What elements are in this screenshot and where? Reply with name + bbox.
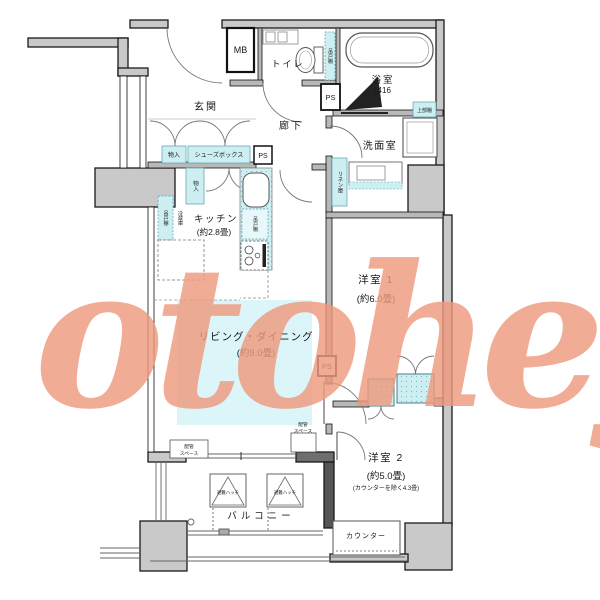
western-room-1-label: 洋室 1	[358, 273, 394, 286]
wall-west2-thick	[324, 462, 334, 528]
kitchen-storage-arc-1	[206, 168, 229, 191]
pipe-space-notch-left-line2: スペース	[180, 451, 199, 457]
refrigerator-space	[158, 240, 204, 280]
pipe-space-upper-label: PS	[325, 93, 335, 102]
wall-kitchen-north-jamb	[312, 164, 326, 170]
kitchen-door-arc	[280, 170, 312, 202]
meter-box-label: MB	[234, 45, 248, 55]
floor-plan-drawing: MB トイレ 吊戸棚 PS 浴室 1416 玄関 廊下 物入 シューズボックス …	[0, 0, 600, 600]
room2-closet-arc-2	[381, 406, 394, 419]
wall-right-lower	[443, 215, 452, 525]
escape-hatch-right-label: 避難ハッチ	[274, 489, 296, 496]
floor-plan-page: MB トイレ 吊戸棚 PS 浴室 1416 玄関 廊下 物入 シューズボックス …	[0, 0, 600, 600]
pipe-space-ld-label: PS	[322, 362, 332, 371]
toilet-handwash-basin-1	[266, 32, 275, 42]
kitchen-storage-label: 物入	[192, 179, 199, 192]
balcony-label: バルコニー	[227, 511, 294, 522]
wall-topleft-stub	[28, 38, 128, 47]
vanity	[349, 162, 402, 189]
entrance-closet-arc-2	[175, 121, 200, 146]
toilet-door-arc	[263, 83, 302, 122]
kitchen-counter-dashed-end	[240, 270, 268, 298]
upper-shelf-label: 上部棚	[417, 107, 432, 114]
shoe-box-label: シューズボックス	[194, 151, 243, 159]
living-dining-size: (約9.0畳)	[237, 347, 276, 359]
kitchen-hanging-cupboard-label: 吊戸棚	[252, 217, 258, 233]
column-bottom-left	[140, 521, 187, 571]
room1-closet-arc-2	[416, 356, 435, 374]
wall-ld-east-c	[326, 424, 332, 434]
pipe-space-notch-right	[291, 433, 316, 452]
pipe-space-notch-left-line1: 配管	[184, 443, 194, 450]
wall-washroom-west-b	[326, 156, 332, 214]
column-bottom-right	[405, 523, 452, 570]
entrance-closet-arc-1	[150, 121, 175, 146]
room1-closet-arc-1	[397, 356, 416, 374]
room2-closet	[368, 379, 394, 406]
entrance-label: 玄関	[194, 100, 218, 113]
entrance-door-arc	[167, 28, 222, 83]
wall-right-jog	[408, 165, 444, 215]
bathroom-label: 浴室	[371, 74, 394, 86]
kitchen-counter	[240, 168, 272, 298]
pipe-space-notch-right-box	[291, 433, 316, 452]
pipe-space-notch-right-line2: スペース	[294, 429, 313, 435]
room1-closet	[397, 374, 434, 403]
washing-machine-pan	[403, 118, 437, 157]
kitchen-west-cupboard-label: 吊戸棚	[163, 211, 169, 227]
wall-ld-south-right	[296, 452, 334, 462]
wall-top-left-seg	[130, 20, 168, 28]
linen-closet-label: リネン庫	[337, 171, 344, 194]
western-room-2-label: 洋室 2	[368, 451, 404, 464]
wall-ld-west	[148, 207, 154, 452]
refrigerator-label: 冷蔵庫	[177, 210, 183, 227]
wall-entrance-west	[140, 76, 146, 168]
vanity-lower-strip	[349, 182, 402, 189]
room2-closet-arc-1	[368, 406, 381, 419]
hallway-label: 廊下	[279, 119, 303, 132]
kitchen-size: (約2.8畳)	[197, 227, 232, 237]
entrance-closet-arc-4	[225, 121, 250, 146]
kitchen-label: キッチン	[194, 214, 238, 225]
wall-topleft-connector	[118, 68, 148, 76]
living-dining-highlight	[177, 300, 312, 425]
pipe-space-notch-right-line1: 配管	[298, 421, 308, 428]
room2-door-arc	[337, 432, 365, 460]
bathtub	[346, 33, 433, 67]
vanity-sink	[357, 166, 385, 180]
wall-washroom-south	[326, 212, 443, 218]
counter-label: カウンター	[346, 531, 386, 540]
toilet-hanging-cupboard-label: 吊戸棚	[327, 49, 333, 65]
western-room-2-size: (約5.0畳)	[367, 470, 406, 482]
wall-toilet-south-a	[230, 80, 263, 86]
wall-top-right-seg	[222, 20, 443, 28]
washroom-door-arc	[330, 126, 362, 158]
toilet-handwash-basin-2	[278, 32, 287, 42]
pipe-space-kitchen-label: PS	[258, 153, 268, 160]
western-room-1-size: (約6.0畳)	[357, 293, 396, 305]
balcony-drain-circle	[188, 519, 194, 525]
washing-machine	[403, 118, 437, 157]
washroom-label: 洗面室	[363, 139, 398, 152]
bathroom-fixtures	[341, 33, 433, 113]
wall-room1-room2	[333, 401, 369, 407]
living-dining-label: リビング・ダイニング	[199, 330, 314, 343]
balcony-drain-box	[219, 529, 229, 535]
stove-side-bar	[263, 244, 267, 267]
wall-left-outer	[120, 76, 127, 168]
wall-toilet-west	[258, 28, 262, 82]
toilet-label: トイレ	[271, 59, 304, 69]
entrance-storage-label: 物入	[168, 151, 180, 159]
western-room-2-note: (カウンターを除く4.3畳)	[353, 484, 419, 492]
entrance-closet-arc-3	[200, 121, 225, 146]
wall-room1-room2-east	[434, 398, 443, 406]
wall-ld-east-a	[326, 218, 332, 356]
bathroom-size: 1416	[373, 86, 391, 95]
escape-hatch-left-label: 避難ハッチ	[217, 489, 239, 496]
kitchen-sink	[243, 173, 269, 207]
